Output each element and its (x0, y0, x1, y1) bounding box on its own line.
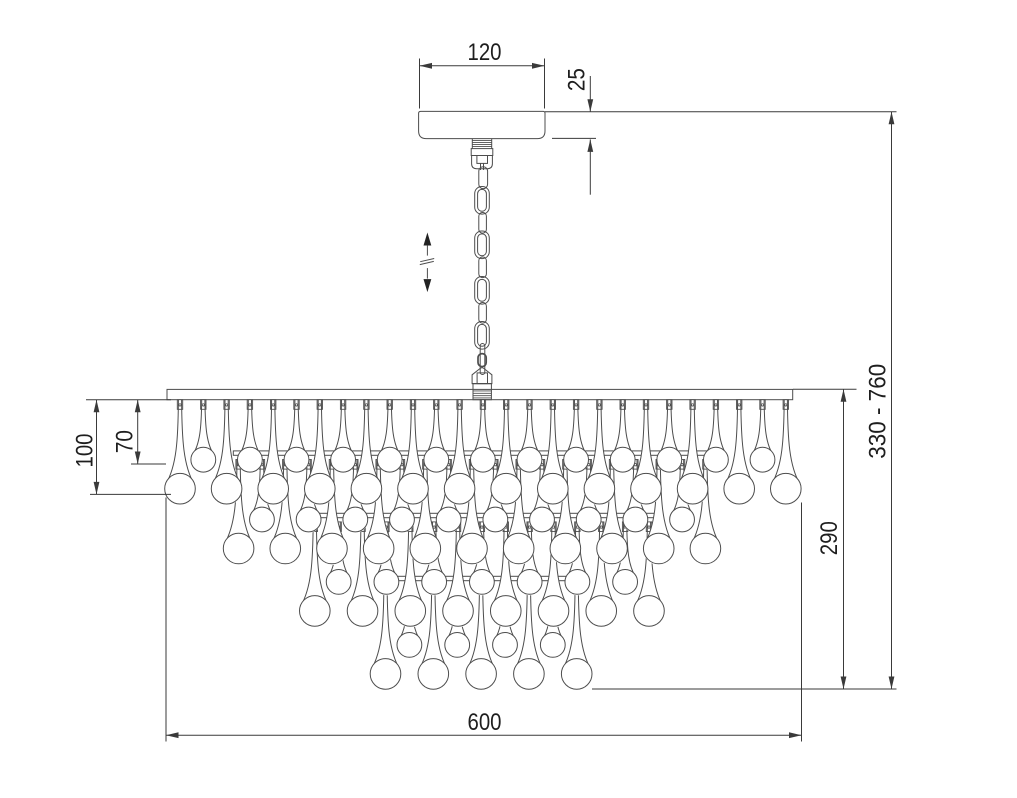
svg-text:120: 120 (468, 39, 502, 66)
svg-text:290: 290 (816, 521, 843, 555)
svg-text:330 - 760: 330 - 760 (865, 364, 892, 459)
svg-text:70: 70 (111, 430, 138, 453)
svg-text:25: 25 (564, 68, 591, 91)
svg-text:100: 100 (72, 434, 99, 468)
svg-text:600: 600 (468, 709, 502, 736)
